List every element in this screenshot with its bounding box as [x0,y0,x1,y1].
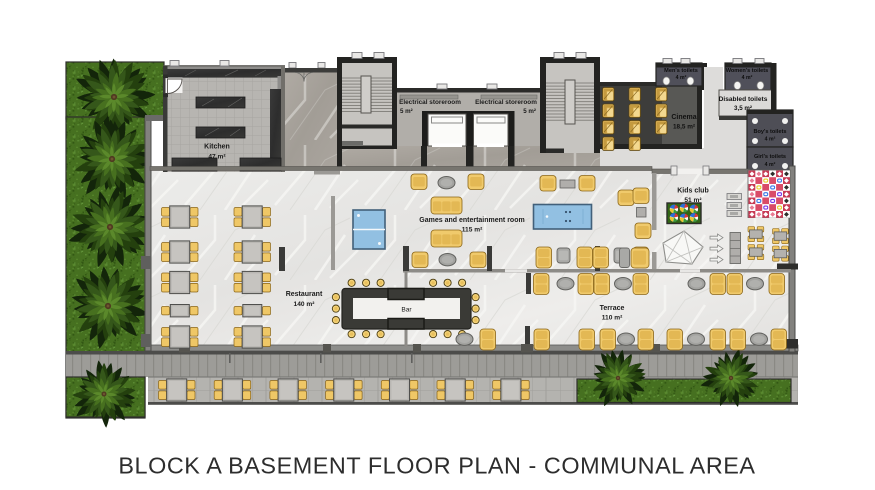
svg-text:5 m²: 5 m² [400,108,413,115]
svg-text:Bar: Bar [401,307,412,314]
svg-text:4 m²: 4 m² [742,75,753,81]
svg-text:115 m²: 115 m² [462,227,483,234]
svg-text:Disabled toilets: Disabled toilets [719,96,768,103]
svg-text:47 m²: 47 m² [208,154,226,161]
svg-text:Restaurant: Restaurant [286,291,323,298]
svg-text:4 m²: 4 m² [765,162,776,168]
svg-text:110 m²: 110 m² [602,315,623,322]
svg-text:Cinema: Cinema [671,114,696,121]
svg-text:140 m²: 140 m² [294,301,316,308]
svg-text:5 m²: 5 m² [523,108,536,115]
svg-text:Women's toilets: Women's toilets [726,68,769,74]
svg-text:Men's toilets: Men's toilets [664,68,698,74]
svg-text:Boy's toilets: Boy's toilets [753,129,786,135]
svg-text:Electrical storeroom: Electrical storeroom [475,99,537,106]
svg-text:Terrace: Terrace [600,305,625,312]
svg-text:Girl's toilets: Girl's toilets [754,154,786,160]
svg-text:BLOCK A BASEMENT FLOOR PLAN -: BLOCK A BASEMENT FLOOR PLAN - COMMUNAL A… [118,453,755,479]
svg-text:Kitchen: Kitchen [204,144,230,151]
svg-text:Games and entertainment room: Games and entertainment room [419,217,524,224]
svg-text:4 m²: 4 m² [765,137,776,143]
svg-text:Kids club: Kids club [677,188,709,195]
svg-text:Electrical storeroom: Electrical storeroom [399,99,461,106]
svg-text:4 m²: 4 m² [676,75,687,81]
svg-text:18,5 m²: 18,5 m² [673,124,695,131]
